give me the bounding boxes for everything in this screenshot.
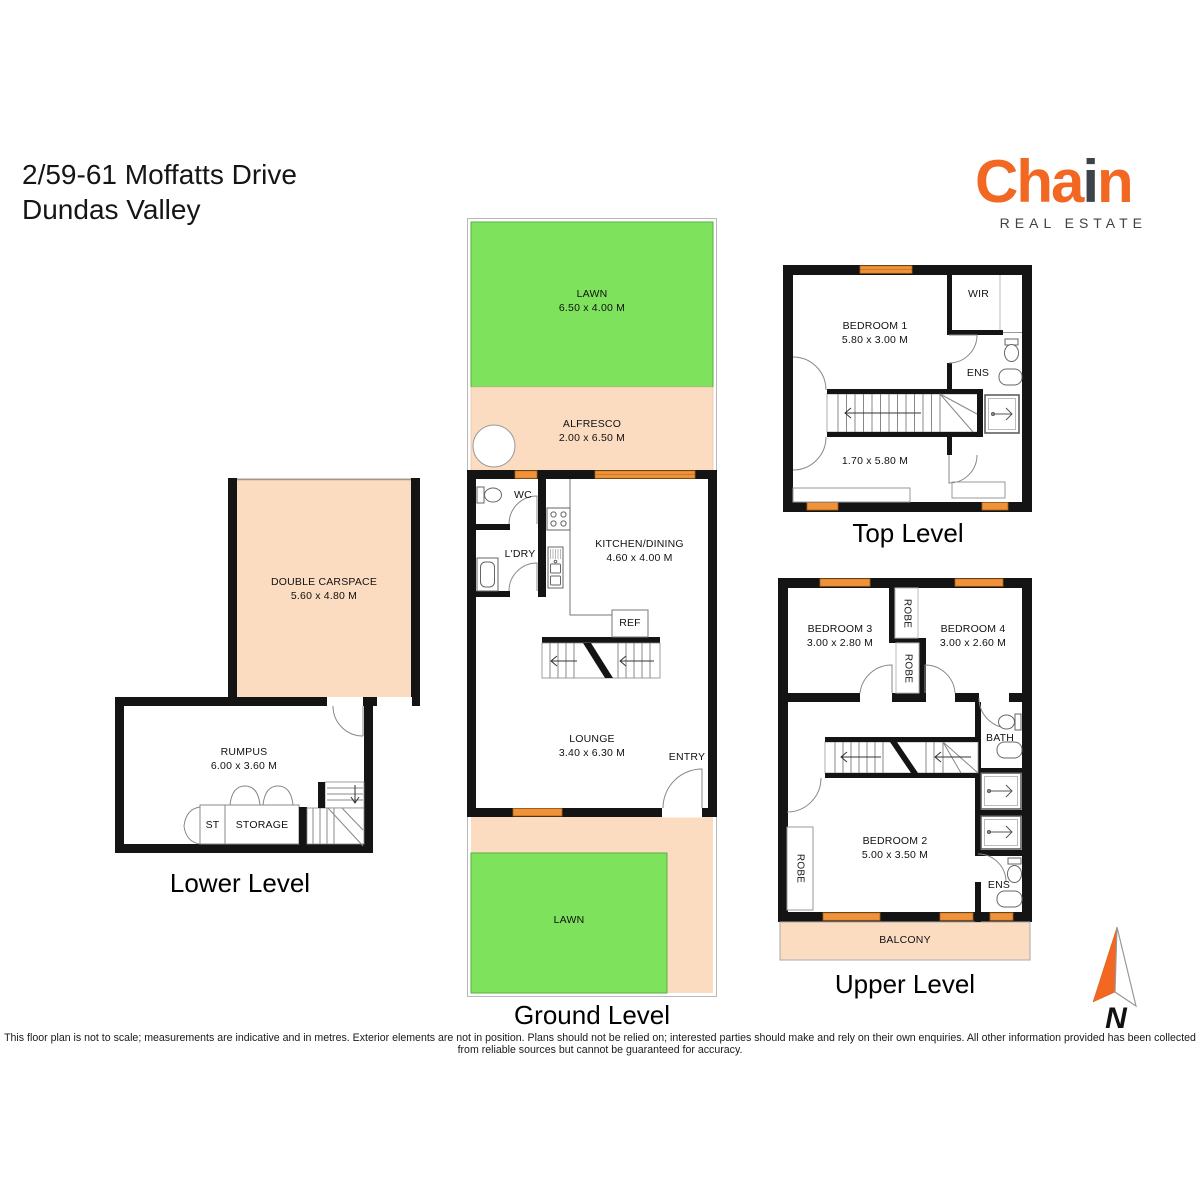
room-dims: 4.60 x 4.00 M: [567, 552, 712, 566]
room-dims: 5.80 x 3.00 M: [800, 334, 950, 348]
stove-icon: [547, 508, 570, 530]
storage-label: STORAGE: [227, 819, 297, 833]
logo-text-i: i: [1082, 148, 1097, 215]
top-walls: [783, 265, 1032, 512]
address-line1: 2/59-61 Moffatts Drive: [22, 158, 297, 193]
bath-icon: [999, 369, 1022, 385]
bedroom3-label: BEDROOM 3 3.00 x 2.80 M: [785, 623, 895, 650]
carspace-label: DOUBLE CARSPACE 5.60 x 4.80 M: [237, 576, 411, 603]
lawn-top-label: LAWN 6.50 x 4.00 M: [467, 288, 717, 315]
upper-ens-label: ENS: [975, 879, 1023, 893]
room-name: KITCHEN/DINING: [567, 538, 712, 552]
bedroom1-label: BEDROOM 1 5.80 x 3.00 M: [800, 320, 950, 347]
bath-label: BATH: [975, 732, 1025, 746]
room-name: BEDROOM 2: [807, 835, 983, 849]
upper-stairs: [825, 737, 978, 778]
lower-level-plan: DOUBLE CARSPACE 5.60 x 4.80 M RUMPUS 6.0…: [110, 470, 425, 910]
disclaimer-text: This floor plan is not to scale; measure…: [0, 1032, 1200, 1056]
room-dims: 3.00 x 2.80 M: [785, 637, 895, 651]
room-name: DOUBLE CARSPACE: [237, 576, 411, 590]
top-hall-dims-label: 1.70 x 5.80 M: [800, 455, 950, 469]
toilet-icon: [1008, 858, 1021, 864]
room-dims: 6.50 x 4.00 M: [467, 302, 717, 316]
lower-level-drawing: [110, 470, 425, 860]
alfresco-label: ALFRESCO 2.00 x 6.50 M: [467, 418, 717, 445]
fridge-label: REF: [612, 617, 648, 631]
logo-tagline: REAL ESTATE: [975, 215, 1147, 231]
ground-level-plan: LAWN 6.50 x 4.00 M ALFRESCO 2.00 x 6.50 …: [467, 218, 717, 1033]
top-level-plan: BEDROOM 1 5.80 x 3.00 M WIR ENS 1.70 x 5…: [783, 262, 1033, 552]
logo-text-n: n: [1097, 148, 1132, 215]
kitchen-dining-label: KITCHEN/DINING 4.60 x 4.00 M: [567, 538, 712, 565]
top-ens-label: ENS: [955, 367, 1001, 381]
toilet-icon: [477, 487, 484, 503]
top-stairs: [827, 389, 983, 437]
logo-text: Cha: [975, 148, 1082, 215]
upper-level-plan: BEDROOM 3 3.00 x 2.80 M BEDROOM 4 3.00 x…: [775, 575, 1035, 1010]
room-name: ALFRESCO: [467, 418, 717, 432]
wir-label: WIR: [951, 288, 1006, 302]
laundry-label: L'DRY: [495, 548, 545, 562]
address-line2: Dundas Valley: [22, 193, 297, 228]
agency-logo: Chain REAL ESTATE: [975, 152, 1147, 231]
compass: N: [1086, 922, 1146, 1034]
room-name: LAWN: [467, 288, 717, 302]
room-name: BEDROOM 1: [800, 320, 950, 334]
room-dims: 2.00 x 6.50 M: [467, 432, 717, 446]
room-name: BEDROOM 3: [785, 623, 895, 637]
north-label: N: [1086, 1002, 1146, 1036]
room-dims: 5.60 x 4.80 M: [237, 590, 411, 604]
robe-label: ROBE: [794, 844, 807, 894]
room-name: BEDROOM 4: [921, 623, 1025, 637]
lower-level-title: Lower Level: [110, 868, 370, 899]
wc-label: WC: [505, 489, 541, 503]
toilet-icon: [1015, 714, 1021, 730]
ground-stairs: [542, 643, 660, 678]
room-dims: 5.00 x 3.50 M: [807, 849, 983, 863]
ground-level-title: Ground Level: [467, 1000, 717, 1031]
robe-label: ROBE: [902, 644, 915, 694]
bath-icon: [997, 891, 1022, 907]
top-level-title: Top Level: [783, 518, 1033, 549]
st-label: ST: [200, 819, 225, 833]
room-name: LOUNGE: [467, 733, 717, 747]
robe-label: ROBE: [901, 589, 914, 639]
entry-label: ENTRY: [657, 751, 717, 765]
property-address: 2/59-61 Moffatts Drive Dundas Valley: [22, 158, 297, 227]
balcony-label: BALCONY: [780, 934, 1030, 948]
room-name: RUMPUS: [124, 746, 364, 760]
logo-wordmark: Chain: [975, 152, 1147, 212]
bedroom4-label: BEDROOM 4 3.00 x 2.60 M: [921, 623, 1025, 650]
room-dims: 6.00 x 3.60 M: [124, 760, 364, 774]
lawn-bottom-label: LAWN: [471, 914, 667, 928]
bedroom2-label: BEDROOM 2 5.00 x 3.50 M: [807, 835, 983, 862]
ground-level-drawing: [467, 218, 717, 997]
room-dims: 3.00 x 2.60 M: [921, 637, 1025, 651]
rumpus-label: RUMPUS 6.00 x 3.60 M: [124, 746, 364, 773]
upper-level-title: Upper Level: [775, 969, 1035, 1000]
